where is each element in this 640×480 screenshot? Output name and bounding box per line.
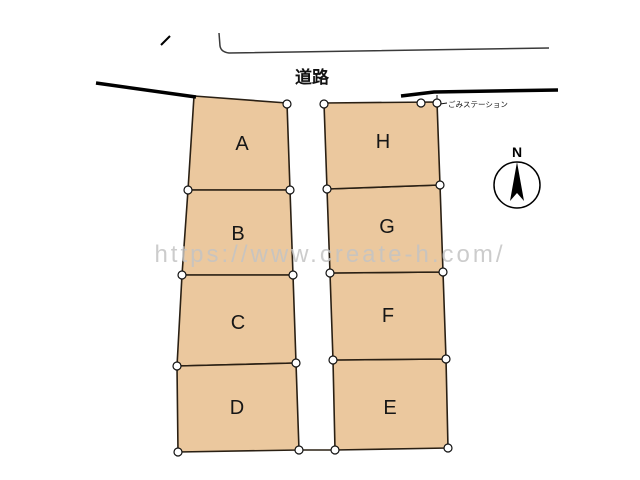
vertex-marker	[436, 181, 444, 189]
lot-label-G: G	[379, 216, 395, 238]
vertex-marker	[173, 362, 181, 370]
lots-layer: ABCDEFGH	[177, 96, 448, 452]
compass: N	[494, 144, 540, 208]
lot-label-C: C	[231, 312, 245, 334]
vertex-marker	[292, 359, 300, 367]
lot-label-A: A	[235, 133, 249, 155]
lot-label-D: D	[230, 397, 244, 419]
vertex-marker	[283, 100, 291, 108]
vertex-marker	[184, 186, 192, 194]
vertex-marker	[331, 446, 339, 454]
vertex-marker	[295, 446, 303, 454]
road-edge-thick-right	[401, 90, 558, 96]
vertex-marker	[289, 271, 297, 279]
vertex-marker	[174, 448, 182, 456]
watermark-text: https://www.create-h.com/	[154, 241, 505, 268]
road-label: 道路	[295, 67, 330, 87]
north-label: N	[512, 144, 522, 160]
trash-station-label: ごみステーション	[448, 99, 508, 109]
site-plan: ABCDEFGH 道路 ごみステーション N https://www.creat…	[0, 0, 640, 480]
vertex-marker	[323, 185, 331, 193]
road-tick-mark	[161, 36, 170, 45]
lot-label-F: F	[382, 305, 394, 327]
road-edge-thick-left	[96, 83, 196, 97]
lot-label-H: H	[376, 131, 390, 153]
vertex-marker	[329, 356, 337, 364]
vertex-marker	[444, 444, 452, 452]
vertex-marker	[417, 99, 425, 107]
vertex-marker	[442, 355, 450, 363]
vertex-marker	[326, 269, 334, 277]
road-edge-upper	[219, 33, 549, 53]
vertex-marker	[320, 100, 328, 108]
vertex-marker	[178, 271, 186, 279]
lot-label-E: E	[383, 397, 396, 419]
vertex-marker	[286, 186, 294, 194]
vertex-marker	[433, 99, 441, 107]
site-plan-canvas: ABCDEFGH 道路 ごみステーション N https://www.creat…	[0, 0, 640, 480]
vertex-marker	[439, 268, 447, 276]
